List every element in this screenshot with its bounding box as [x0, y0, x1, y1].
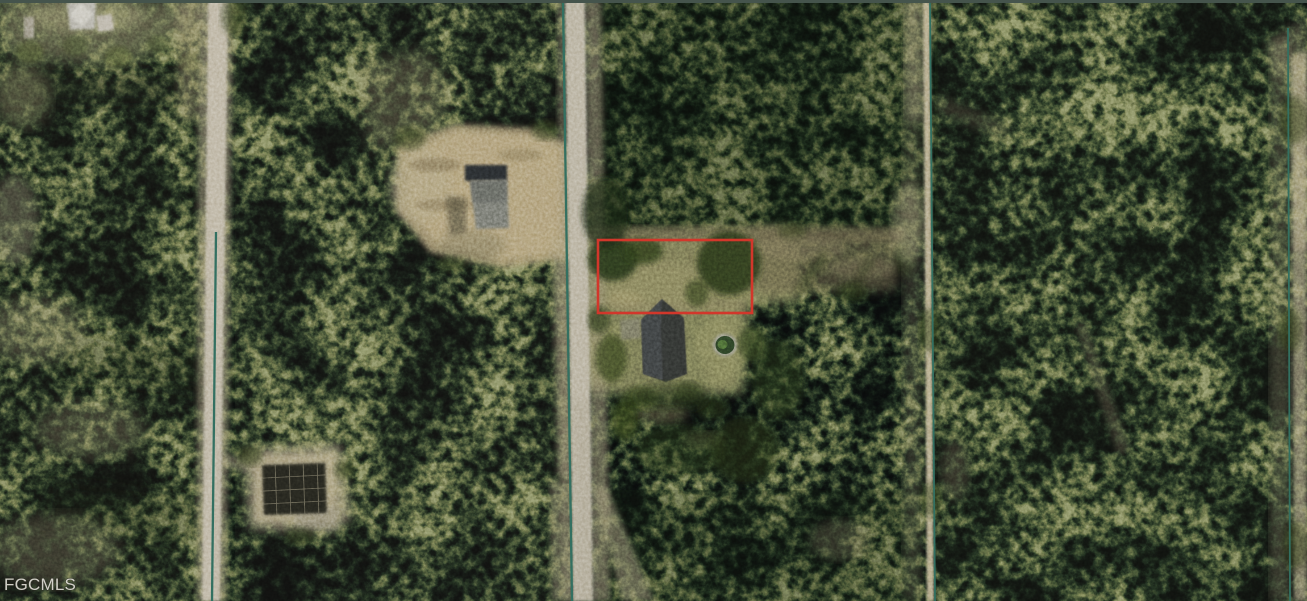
svg-text:FGCMLS: FGCMLS — [4, 575, 76, 594]
